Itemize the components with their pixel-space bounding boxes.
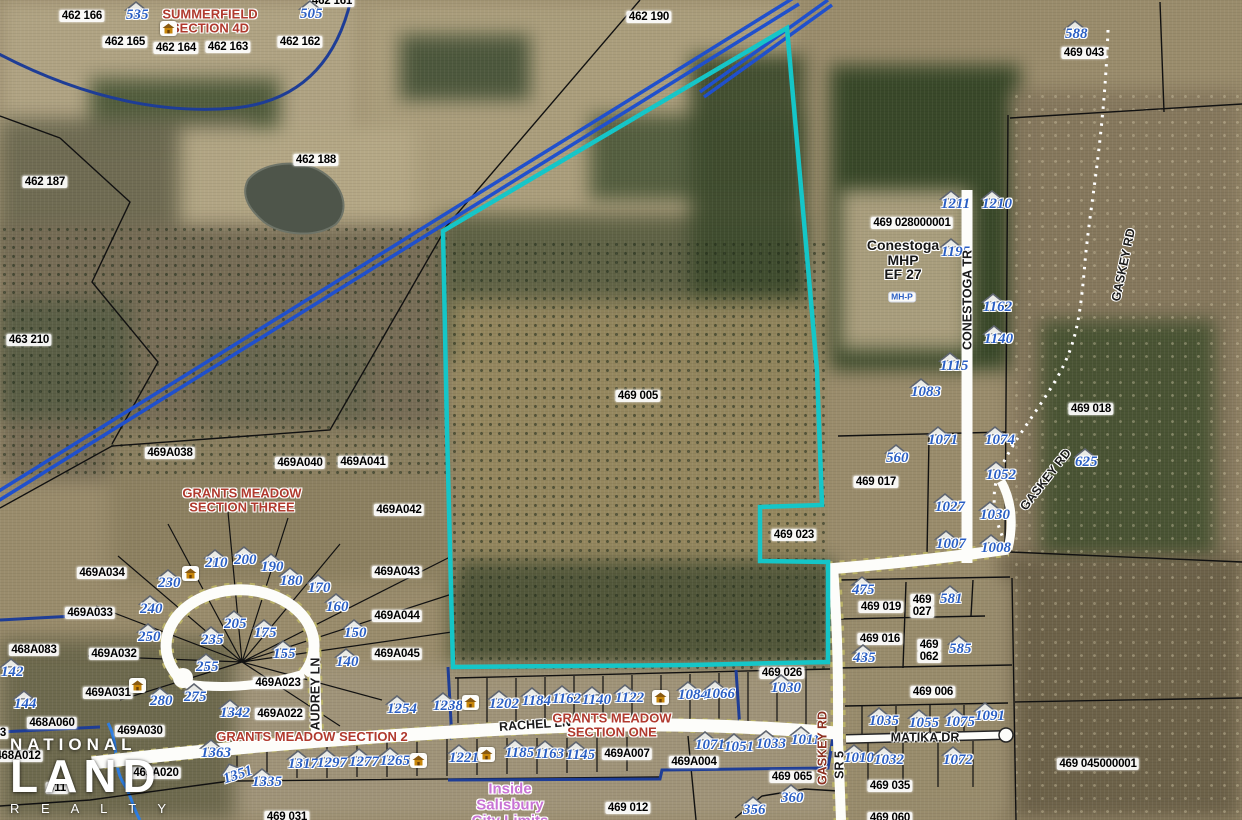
subdivision-label: SUMMERFIELDSECTION 4D bbox=[162, 7, 257, 34]
subdivision-house-icon bbox=[478, 747, 495, 762]
address-number: 1185 bbox=[505, 745, 534, 762]
place-label: ConestogaMHPEF 27 bbox=[867, 238, 939, 282]
parcel-label: 469A004 bbox=[669, 756, 719, 768]
address-number: 1074 bbox=[985, 432, 1015, 449]
address-number: 1055 bbox=[909, 715, 939, 732]
subdivision-house-icon bbox=[182, 566, 199, 581]
parcel-label: 462 162 bbox=[277, 36, 322, 48]
address-number: 155 bbox=[273, 646, 296, 663]
address-number: 1115 bbox=[940, 358, 968, 375]
address-number: 581 bbox=[940, 591, 963, 608]
address-number: 1342 bbox=[220, 705, 250, 722]
address-number: 1335 bbox=[252, 774, 282, 791]
address-number: 275 bbox=[184, 689, 207, 706]
address-number: 356 bbox=[743, 802, 766, 819]
address-number: 1051 bbox=[724, 739, 754, 756]
address-number: 1052 bbox=[986, 467, 1016, 484]
parcel-label: 469 006 bbox=[910, 686, 955, 698]
address-number: 1083 bbox=[911, 384, 941, 401]
address-number: 585 bbox=[949, 641, 972, 658]
subdivision-house-icon bbox=[652, 690, 669, 705]
address-number: 250 bbox=[138, 629, 161, 646]
address-number: 205 bbox=[224, 616, 247, 633]
parcel-label: 469A041 bbox=[338, 456, 388, 468]
address-number: 1238 bbox=[433, 698, 463, 715]
address-number: 1075 bbox=[945, 714, 975, 731]
address-number: 1163 bbox=[535, 746, 564, 763]
address-number: 1145 bbox=[566, 747, 595, 764]
address-number: 200 bbox=[234, 552, 257, 569]
parcel-label: 469A033 bbox=[65, 607, 115, 619]
parcel-label: 462 164 bbox=[153, 42, 198, 54]
address-number: 360 bbox=[781, 790, 804, 807]
address-number: 505 bbox=[300, 6, 323, 23]
subdivision-house-icon bbox=[129, 678, 146, 693]
brand-logo-line2: LAND bbox=[10, 755, 175, 799]
address-number: 1162 bbox=[983, 299, 1012, 316]
brand-logo: NATIONAL LAND R E A L T Y bbox=[10, 735, 175, 816]
parcel-label: 462 188 bbox=[293, 154, 338, 166]
road-label: MATIKA DR bbox=[891, 731, 960, 744]
address-number: 1122 bbox=[615, 690, 644, 707]
address-number: 240 bbox=[140, 601, 163, 618]
subdivision-house-icon bbox=[160, 21, 177, 36]
parcel-label: 469 005 bbox=[615, 390, 660, 402]
address-number: 235 bbox=[201, 632, 224, 649]
address-number: 1184 bbox=[522, 693, 551, 710]
address-number: 1033 bbox=[756, 736, 786, 753]
address-number: 1066 bbox=[705, 686, 735, 703]
address-number: 1032 bbox=[874, 752, 904, 769]
road-label: CONESTOGA TR bbox=[961, 250, 974, 350]
address-number: 435 bbox=[853, 650, 876, 667]
address-number: 1140 bbox=[984, 331, 1013, 348]
subdivision-label: GRANTS MEADOWSECTION THREE bbox=[182, 486, 301, 513]
address-number: 1317 bbox=[288, 756, 318, 773]
parcel-label: 469A034 bbox=[77, 567, 127, 579]
address-number: 144 bbox=[14, 696, 37, 713]
subdivision-house-icon bbox=[462, 695, 479, 710]
parcel-label: 469 028000001 bbox=[871, 217, 953, 229]
parcel-label: 469A023 bbox=[253, 677, 303, 689]
address-number: 1008 bbox=[981, 540, 1011, 557]
parcel-label: 469 065 bbox=[769, 771, 814, 783]
parcel-label: 469A045 bbox=[372, 648, 422, 660]
address-number: 1091 bbox=[975, 708, 1005, 725]
parcel-label: 469 012 bbox=[605, 802, 650, 814]
address-number: 535 bbox=[126, 7, 149, 24]
parcel-label: 469 035 bbox=[867, 780, 912, 792]
address-number: 180 bbox=[280, 573, 303, 590]
address-number: 1221 bbox=[449, 750, 479, 767]
address-number: 560 bbox=[886, 450, 909, 467]
map-canvas[interactable]: 462 166462 165462 164462 163462 162462 1… bbox=[0, 0, 1242, 820]
address-number: 1007 bbox=[936, 536, 966, 553]
brand-logo-line3: R E A L T Y bbox=[10, 801, 175, 816]
place-label: InsideSalisburyCity Limits bbox=[472, 781, 549, 820]
address-number: 1254 bbox=[387, 701, 417, 718]
address-number: 1030 bbox=[980, 507, 1010, 524]
parcel-label: 462 187 bbox=[22, 176, 67, 188]
parcel-label: 469A038 bbox=[145, 447, 195, 459]
address-number: 142 bbox=[1, 664, 24, 681]
address-number: 1072 bbox=[943, 752, 973, 769]
address-number: 1202 bbox=[489, 696, 519, 713]
parcel-label: 469 060 bbox=[867, 812, 912, 820]
parcel-label: 469 043 bbox=[1061, 47, 1106, 59]
subject-boundary bbox=[443, 28, 828, 667]
address-number: 150 bbox=[344, 625, 367, 642]
parcel-label: 3 bbox=[0, 727, 9, 739]
address-number: 1010 bbox=[844, 750, 874, 767]
road-label: AUDREY LN bbox=[309, 658, 322, 731]
subdivision-house-icon bbox=[410, 753, 427, 768]
parcel-label: 462 165 bbox=[102, 36, 147, 48]
address-number: 625 bbox=[1075, 454, 1098, 471]
address-number: 1211 bbox=[941, 196, 970, 213]
address-number: 160 bbox=[326, 599, 349, 616]
address-number: 1277 bbox=[349, 754, 379, 771]
parcel-label: 469A031 bbox=[83, 687, 133, 699]
pond bbox=[245, 164, 343, 234]
address-number: 255 bbox=[196, 659, 219, 676]
parcel-label: 469A044 bbox=[372, 610, 422, 622]
address-number: 1071 bbox=[695, 737, 725, 754]
address-number: 1030 bbox=[771, 680, 801, 697]
subdivision-label: GRANTS MEADOWSECTION ONE bbox=[552, 711, 671, 738]
address-number: 475 bbox=[852, 582, 875, 599]
parcel-label: 469A032 bbox=[89, 648, 139, 660]
parcel-label: 469A043 bbox=[372, 566, 422, 578]
address-number: 1071 bbox=[928, 432, 958, 449]
parcel-label: 463 210 bbox=[6, 334, 51, 346]
parcel-label: 469A042 bbox=[374, 504, 424, 516]
road-label: SR 5 bbox=[833, 751, 846, 779]
address-number: 230 bbox=[158, 575, 181, 592]
parcel-label: 462 166 bbox=[59, 10, 104, 22]
parcel-label: 468A060 bbox=[27, 717, 77, 729]
parcel-label: 468A083 bbox=[9, 644, 59, 656]
address-number: 280 bbox=[150, 693, 173, 710]
address-number: 1035 bbox=[869, 713, 899, 730]
parcel-label: 462 190 bbox=[626, 11, 671, 23]
parcel-label: 469A022 bbox=[255, 708, 305, 720]
address-number: 1027 bbox=[935, 499, 965, 516]
road-label: GASKEY RD bbox=[816, 711, 829, 785]
address-number: 1265 bbox=[380, 753, 410, 770]
parcel-label: 469027 bbox=[910, 594, 934, 618]
subdivision-label: GRANTS MEADOW SECTION 2 bbox=[216, 730, 407, 744]
parcel-label: 469 023 bbox=[771, 529, 816, 541]
parcel-label: 469062 bbox=[917, 639, 941, 663]
address-number: 1363 bbox=[201, 745, 231, 762]
parcel-label: 469 045000001 bbox=[1057, 758, 1139, 770]
address-number: 1162 bbox=[552, 691, 581, 708]
address-number: 1140 bbox=[582, 692, 611, 709]
address-number: 588 bbox=[1065, 26, 1088, 43]
address-number: 1297 bbox=[317, 755, 347, 772]
parcel-label: 469A007 bbox=[602, 748, 652, 760]
parcel-label: 469 019 bbox=[858, 601, 903, 613]
address-number: 1210 bbox=[982, 196, 1012, 213]
address-number: 210 bbox=[205, 555, 228, 572]
parcel-label: 469 017 bbox=[853, 476, 898, 488]
mhp-chip: MH-P bbox=[888, 292, 916, 303]
parcel-label: 462 163 bbox=[205, 41, 250, 53]
parcel-label: 469A040 bbox=[275, 457, 325, 469]
parcel-label: 469 031 bbox=[264, 811, 309, 820]
address-number: 140 bbox=[336, 654, 359, 671]
parcel-label: 469 018 bbox=[1068, 403, 1113, 415]
